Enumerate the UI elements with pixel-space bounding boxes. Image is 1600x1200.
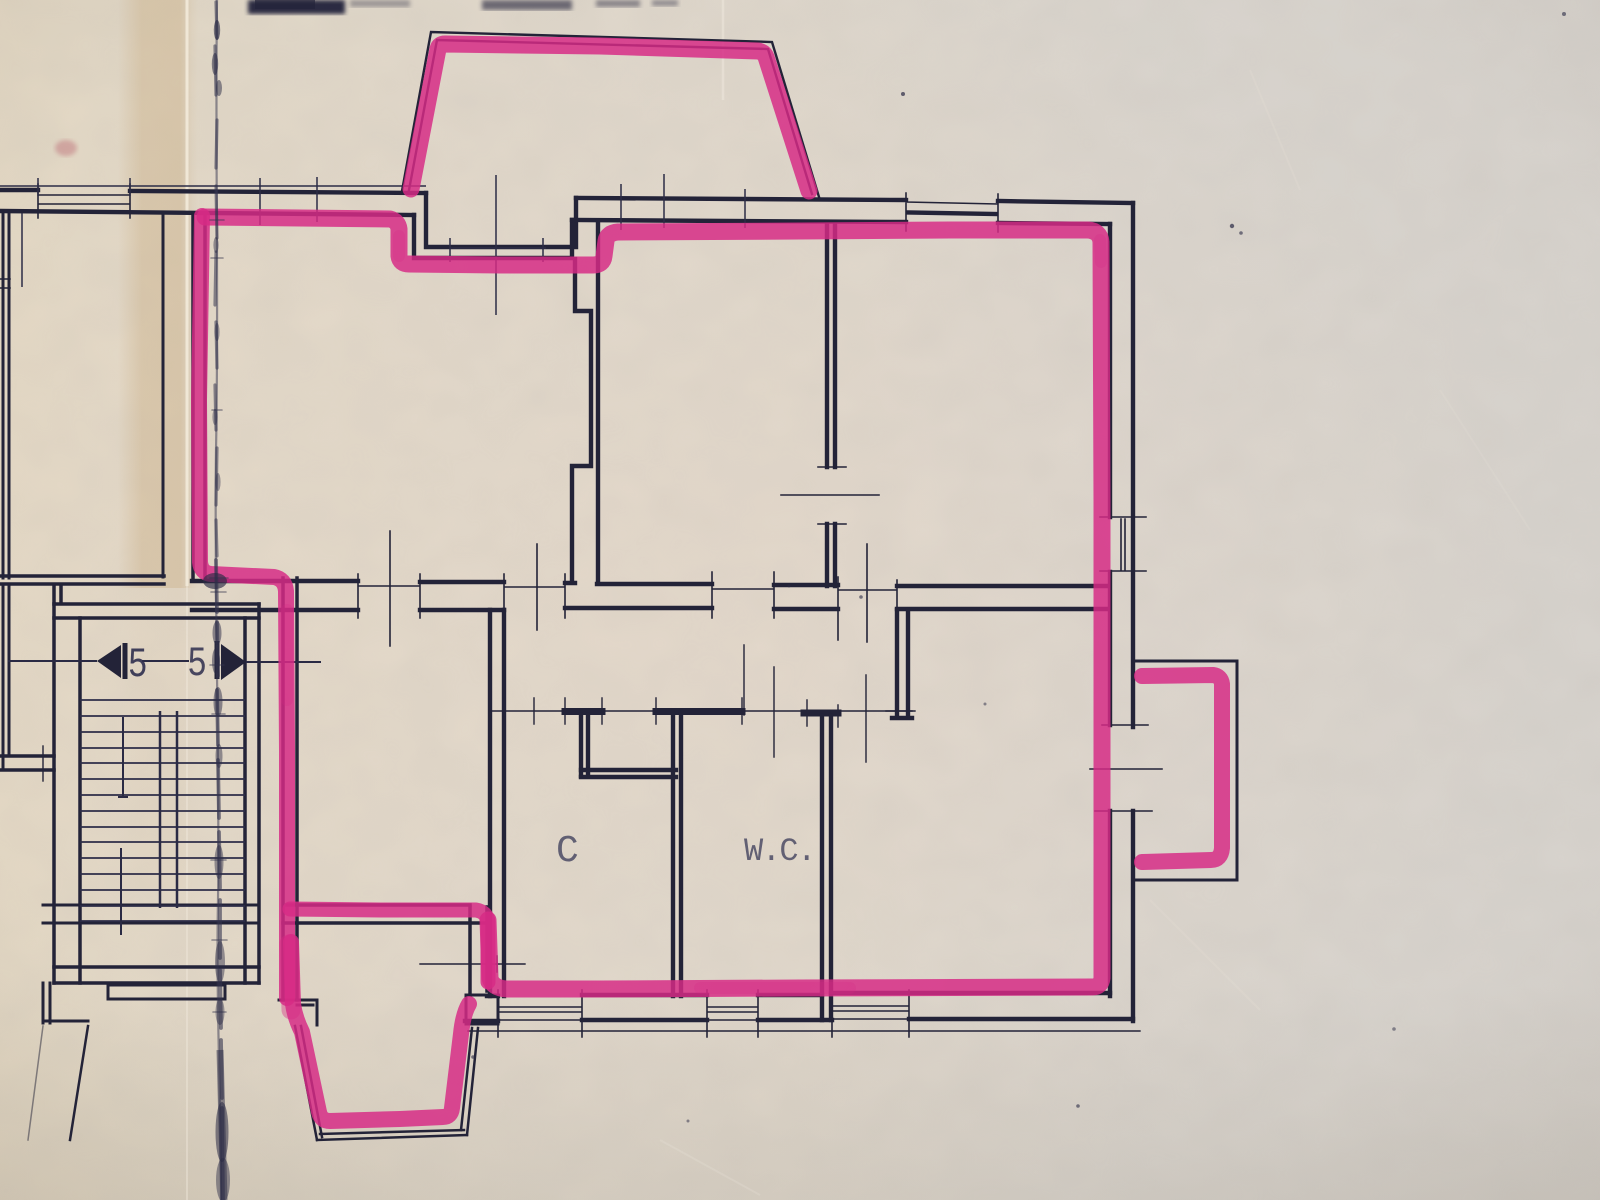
svg-text:C: C: [556, 830, 579, 873]
svg-text:5: 5: [128, 643, 148, 690]
svg-text:W.C.: W.C.: [744, 833, 815, 870]
svg-text:5: 5: [187, 642, 207, 689]
